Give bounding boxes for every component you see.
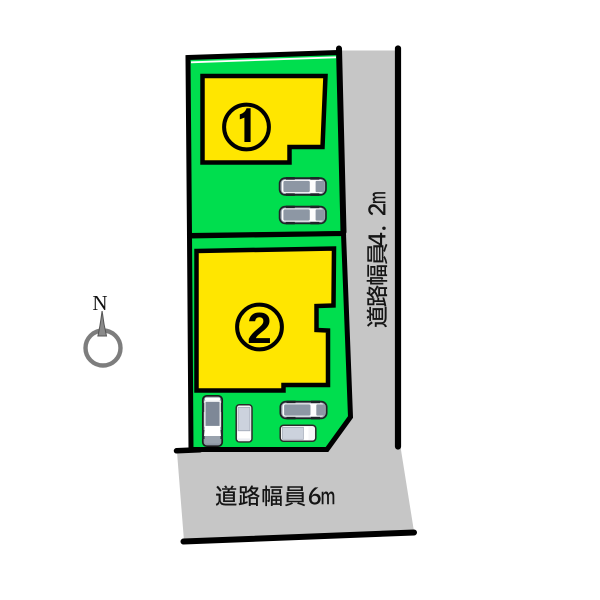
svg-text:2: 2 [247,304,271,353]
svg-text:N: N [92,291,107,315]
